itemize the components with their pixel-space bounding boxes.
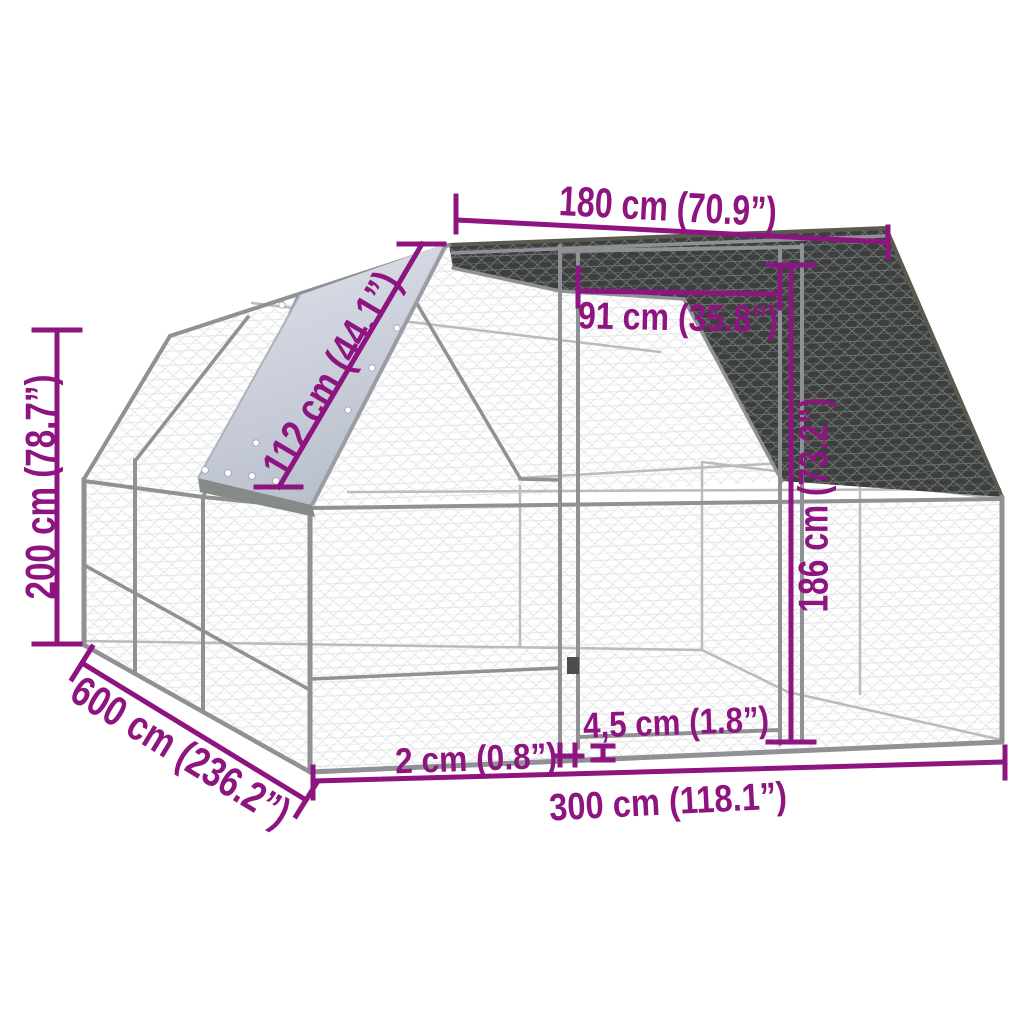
dimension-width-label: 300 cm (118.1”) bbox=[548, 775, 788, 829]
dimension-height: 200 cm (78.7”) bbox=[17, 330, 80, 644]
dimension-diagram-page: 180 cm (70.9”) 91 cm (35.8”) 112 cm (44.… bbox=[0, 0, 1024, 1024]
chicken-coop-dimension-diagram: 180 cm (70.9”) 91 cm (35.8”) 112 cm (44.… bbox=[0, 0, 1024, 1024]
strut-connector bbox=[520, 479, 560, 480]
dimension-height-label: 200 cm (78.7”) bbox=[17, 375, 64, 600]
dimension-door-height-label: 186 cm (73.2”) bbox=[790, 398, 837, 613]
dimension-door-width-label: 91 cm (35.8”) bbox=[578, 295, 779, 341]
dimension-clearance-label: 4,5 cm (1.8”) bbox=[582, 698, 769, 745]
door-latch bbox=[567, 657, 579, 674]
